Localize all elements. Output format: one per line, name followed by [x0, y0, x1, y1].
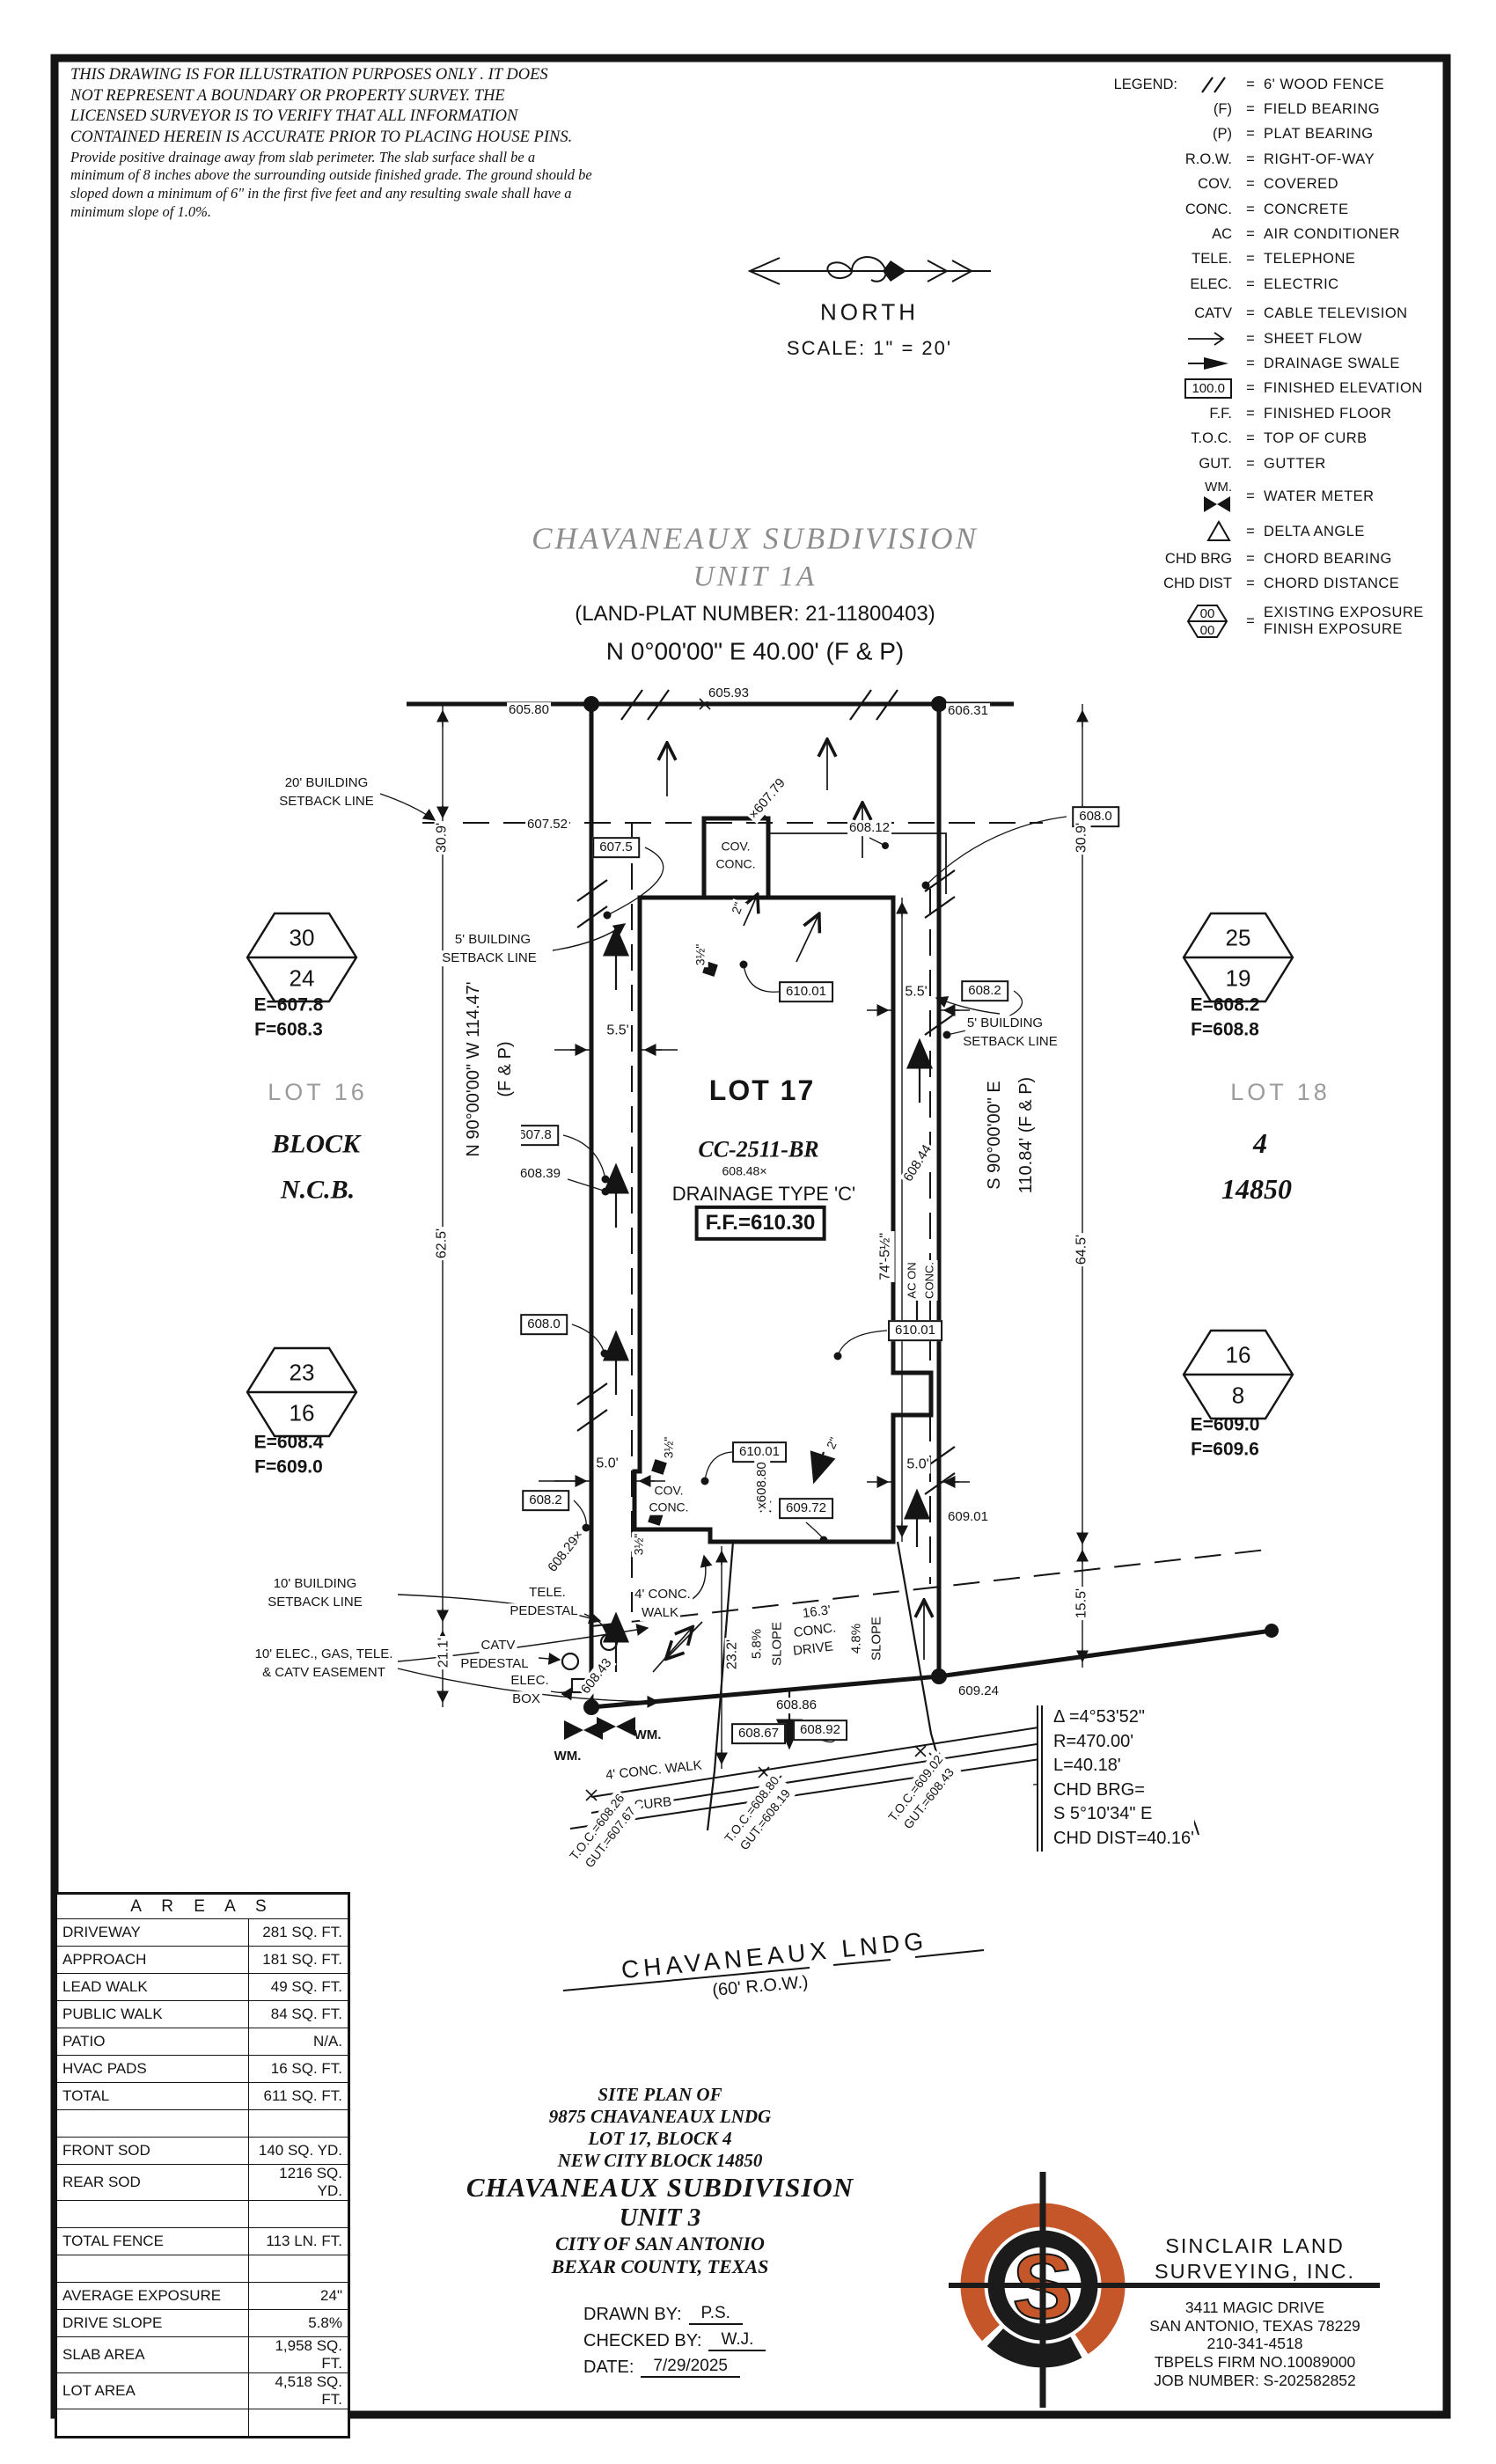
curve-delta: Δ =4°53'52" [1053, 1705, 1194, 1730]
legend-row: CONC.=CONCRETE [1098, 197, 1450, 222]
setback-callout: 20' BUILDING [283, 775, 370, 791]
legend-desc: 6' WOOD FENCE [1264, 77, 1450, 93]
curve-chord-distance: CHD DIST=40.16' [1053, 1827, 1194, 1852]
areas-table: A R E A S DRIVEWAY281 SQ. FT. APPROACH18… [55, 1892, 350, 2438]
exposure-elevation: F=608.8 [1189, 1020, 1261, 1042]
legend-row-delta: =DELTA ANGLE [1098, 517, 1450, 546]
dimension-label: 21.1' [436, 1636, 453, 1669]
disclaimer-line: LICENSED SURVEYOR IS TO VERIFY THAT ALL … [70, 106, 651, 128]
legend-row: T.O.C.=TOP OF CURB [1098, 426, 1450, 451]
subject-lot-label: LOT 17 [708, 1074, 817, 1108]
hex-existing-exposure: 25 [1224, 925, 1253, 952]
elec-box-label: BOX [510, 1691, 542, 1707]
curve-data-block: Δ =4°53'52" R=470.00' L=40.18' CHD BRG= … [1037, 1705, 1194, 1852]
walk-label: WALK [640, 1605, 680, 1621]
legend-row: R.O.W.=RIGHT-OF-WAY [1098, 147, 1450, 172]
legend-row: CHD BRG=CHORD BEARING [1098, 546, 1450, 571]
drainage-note-line: minimum slope of 1.0%. [70, 203, 651, 222]
firm-address-line: SAN ANTONIO, TEXAS 78229 [1126, 2317, 1383, 2336]
firm-phone: 210-341-4518 [1126, 2335, 1383, 2353]
survey-tick-marks [586, 699, 1093, 1809]
areas-row [56, 2110, 349, 2138]
setback-callout: SETBACK LINE [266, 1595, 364, 1610]
scale-label: SCALE: 1" = 20' [785, 337, 954, 360]
siteplan-unit: UNIT 3 [396, 2204, 924, 2233]
north-arrow-icon [750, 257, 991, 284]
legend-row: (P)=PLAT BEARING [1098, 122, 1450, 147]
exposure-hex-icon: 00 00 [1183, 598, 1232, 644]
finished-elevation-box: 607.5 [592, 837, 640, 858]
callout-leader-arrows [380, 794, 1000, 1702]
setback-callout: SETBACK LINE [277, 794, 376, 810]
drawn-by-row: DRAWN BY: P.S. [583, 2304, 743, 2325]
dimension-label: 3½" [662, 1435, 677, 1460]
checked-by-row: CHECKED BY: W.J. [583, 2330, 766, 2351]
drive-slope-label: 5.8%SLOPE [748, 1620, 788, 1668]
firm-address-line: 3411 MAGIC DRIVE [1126, 2299, 1383, 2317]
areas-row [56, 2409, 349, 2438]
legend-row: AC=AIR CONDITIONER [1098, 222, 1450, 246]
water-meter-icon [1202, 495, 1232, 514]
checked-by-value: W.J. [708, 2330, 766, 2351]
covered-concrete-label: COV. [653, 1484, 686, 1499]
drive-slope-label: 4.8%SLOPE [847, 1615, 887, 1662]
legend-desc: EXISTING EXPOSURE [1264, 605, 1450, 621]
disclaimer-line: THIS DRAWING IS FOR ILLUSTRATION PURPOSE… [70, 65, 651, 86]
areas-row [56, 2201, 349, 2228]
wood-fence-icon [1193, 75, 1232, 94]
covered-concrete-label: COV. [720, 840, 752, 854]
firm-name-line: SINCLAIR LAND [1126, 2233, 1383, 2259]
areas-row: AVERAGE EXPOSURE24" [56, 2283, 349, 2310]
catv-pedestal-icon [562, 1654, 578, 1669]
areas-row: FRONT SOD140 SQ. YD. [56, 2138, 349, 2165]
north-label: NORTH [818, 299, 920, 326]
dimension-label: 5.0' [905, 1457, 930, 1474]
elec-box-label: ELEC. [509, 1673, 550, 1689]
legend-row: (F)=FIELD BEARING [1098, 97, 1450, 121]
siteplan-county: BEXAR COUNTY, TEXAS [396, 2255, 924, 2278]
legend-row-water-meter: WM. =WATER METER [1098, 476, 1450, 517]
firm-name-line: SURVEYING, INC. [1126, 2259, 1383, 2284]
house-outline [634, 818, 931, 1542]
exposure-elevation: E=608.2 [1189, 995, 1262, 1017]
curve-chord-bearing: CHD BRG= [1053, 1778, 1194, 1803]
dimension-label: 5.0' [594, 1456, 620, 1473]
disclaimer-line: NOT REPRESENT A BOUNDARY OR PROPERTY SUR… [70, 86, 651, 107]
water-meter-label: WM. [553, 1749, 583, 1764]
areas-row: LEAD WALK49 SQ. FT. [56, 1974, 349, 2001]
finished-elevation-box: 610.01 [779, 981, 833, 1002]
drawn-by-value: P.S. [689, 2304, 743, 2325]
plan-model-number: CC-2511-BR [696, 1137, 820, 1164]
dimension-label: 5.5' [903, 985, 928, 1001]
finished-elevation-box: 610.01 [888, 1320, 942, 1341]
hex-existing-exposure: 23 [288, 1360, 317, 1387]
legend-row-exposure: 00 00 = EXISTING EXPOSUREFINISH EXPOSURE [1098, 597, 1450, 646]
dimension-label: 30.9' [1074, 821, 1091, 854]
dimension-label: 64.5' [1074, 1233, 1091, 1266]
block-label: BLOCK [270, 1128, 362, 1159]
disclaimer-line: CONTAINED HEREIN IS ACCURATE PRIOR TO PL… [70, 128, 651, 149]
covered-concrete-label: CONC. [714, 857, 757, 872]
sheet-flow-icon [1186, 330, 1232, 348]
spot-elevation: 605.80 [507, 702, 551, 718]
curve-chord-bearing-value: S 5°10'34" E [1053, 1802, 1194, 1827]
siteplan-line: SITE PLAN OF [396, 2084, 924, 2106]
siteplan-line: NEW CITY BLOCK 14850 [396, 2150, 924, 2172]
west-boundary-bearing: N 90°00'00" W 114.47' (F & P) [458, 979, 521, 1158]
exposure-elevation: F=609.0 [253, 1457, 325, 1479]
east-boundary-bearing: S 90°00'00" E 110.84' (F & P) [979, 1075, 1042, 1195]
setback-callout: 5' BUILDING [965, 1016, 1045, 1031]
areas-header: A R E A S [56, 1894, 349, 1919]
legend-row: ELEC.=ELECTRIC [1098, 272, 1450, 297]
ncb-label: N.C.B. [279, 1174, 356, 1205]
legend-row: GUT.=GUTTER [1098, 451, 1450, 476]
finished-floor-box: F.F.=610.30 [695, 1206, 826, 1241]
spot-elevation: 608.48× [721, 1164, 769, 1179]
easement-callout: 10' ELEC., GAS, TELE. [253, 1646, 395, 1662]
areas-row: APPROACH181 SQ. FT. [56, 1947, 349, 1974]
hex-finish-exposure: 8 [1230, 1382, 1246, 1410]
hex-finish-exposure: 19 [1224, 965, 1253, 993]
covered-concrete-label: CONC. [647, 1500, 690, 1515]
dimension-label: 74'-5½" [878, 1231, 895, 1282]
areas-row: TOTAL611 SQ. FT. [56, 2083, 349, 2110]
dimension-label: 62.5' [435, 1227, 451, 1260]
finished-elevation-box: 608.67 [731, 1723, 786, 1744]
legend-row: F.F.=FINISHED FLOOR [1098, 401, 1450, 426]
legend-title: LEGEND: [1114, 77, 1177, 93]
ncb-number: 14850 [1220, 1173, 1294, 1206]
areas-row: PUBLIC WALK84 SQ. FT. [56, 2001, 349, 2028]
finished-elevation-box: 608.2 [522, 1490, 569, 1511]
date-row: DATE: 7/29/2025 [583, 2357, 740, 2378]
firm-name: SINCLAIR LAND SURVEYING, INC. [1126, 2233, 1383, 2285]
dimension-label: 3½" [693, 942, 708, 967]
areas-row: DRIVE SLOPE5.8% [56, 2310, 349, 2337]
exposure-elevation: E=607.8 [253, 995, 326, 1017]
tele-pedestal-label: PEDESTAL [508, 1603, 579, 1619]
dimension-label: 3½" [632, 1532, 647, 1557]
dimension-label: 5.5' [605, 1023, 630, 1040]
dimension-label: 30.9' [435, 821, 451, 854]
easement-callout: & CATV EASEMENT [260, 1665, 387, 1681]
hex-existing-exposure: 30 [288, 925, 317, 952]
spot-elevation: 607.52 [525, 817, 569, 832]
drawn-by-label: DRAWN BY: [583, 2305, 682, 2325]
disclaimer-note: THIS DRAWING IS FOR ILLUSTRATION PURPOSE… [70, 65, 651, 222]
svg-text:00: 00 [1200, 606, 1215, 621]
date-value: 7/29/2025 [641, 2357, 740, 2378]
dimension-label: 23.2' [725, 1638, 742, 1671]
hex-finish-exposure: 16 [288, 1400, 317, 1427]
curve-length: L=40.18' [1053, 1754, 1194, 1778]
legend-row-sheet-flow: =SHEET FLOW [1098, 326, 1450, 351]
finished-elevation-box: 610.01 [732, 1441, 787, 1463]
bearing-line: 110.84' (F & P) [1010, 1077, 1042, 1193]
delta-angle-icon [1206, 519, 1232, 544]
ac-on-conc-label: AC ONCONC. [904, 1260, 938, 1301]
hex-existing-exposure: 16 [1224, 1342, 1253, 1369]
spot-elevation: 608.86 [774, 1698, 818, 1713]
legend-row: CHD DIST=CHORD DISTANCE [1098, 572, 1450, 597]
spot-elevation: 605.93 [707, 686, 751, 701]
drainage-note-line: sloped down a minimum of 6" in the first… [70, 185, 651, 203]
firm-address: 3411 MAGIC DRIVE SAN ANTONIO, TEXAS 7822… [1126, 2299, 1383, 2389]
curve-radius: R=470.00' [1053, 1730, 1194, 1755]
areas-row: LOT AREA4,518 SQ. FT. [56, 2373, 349, 2409]
plat-number: (LAND-PLAT NUMBER: 21-11800403) [573, 602, 937, 627]
water-meter-label: WM. [633, 1727, 664, 1743]
legend-row-fence: LEGEND: =6' WOOD FENCE [1098, 72, 1450, 97]
spot-elevation: 606.31 [946, 703, 990, 719]
legend-row-finished-elev: 100.0 =FINISHED ELEVATION [1098, 377, 1450, 401]
hex-finish-exposure: 24 [288, 965, 317, 993]
siteplan-city: CITY OF SAN ANTONIO [396, 2233, 924, 2255]
finished-elevation-box: 608.0 [520, 1314, 568, 1335]
siteplan-line: 9875 CHAVANEAUX LNDG [396, 2106, 924, 2128]
setback-callout: SETBACK LINE [440, 950, 539, 966]
north-boundary-bearing: N 0°00'00" E 40.00' (F & P) [605, 636, 906, 665]
bearing-line: S 90°00'00" E [979, 1077, 1010, 1193]
job-number: JOB NUMBER: S-202582852 [1126, 2372, 1383, 2390]
catv-pedestal-label: PEDESTAL [458, 1656, 530, 1672]
dimension-label: 15.5' [1074, 1587, 1091, 1620]
block-number: 4 [1251, 1127, 1269, 1161]
finished-elevation-box: 609.72 [779, 1498, 833, 1519]
checked-by-label: CHECKED BY: [583, 2331, 701, 2351]
exposure-elevation: F=608.3 [253, 1020, 325, 1042]
spot-elevation: 609.24 [957, 1683, 1001, 1699]
hatch-blocks [648, 961, 718, 1526]
finished-elevation-box: 608.92 [793, 1720, 847, 1741]
tele-pedestal-label: TELE. [527, 1585, 568, 1601]
spot-elevation: x608.80 [754, 1460, 770, 1510]
spot-elevation: 608.12 [847, 820, 891, 836]
legend-row: CATV=CABLE TELEVISION [1098, 302, 1450, 326]
garage-slab-line [768, 833, 946, 894]
areas-row: TOTAL FENCE113 LN. FT. [56, 2228, 349, 2255]
drainage-note-line: Provide positive drainage away from slab… [70, 149, 651, 167]
siteplan-subdivision: CHAVANEAUX SUBDIVISION [396, 2172, 924, 2204]
drainage-note-line: minimum of 8 inches above the surroundin… [70, 166, 651, 185]
legend-desc: FINISH EXPOSURE [1264, 621, 1450, 638]
bearing-line: N 90°00'00" W 114.47' [458, 981, 489, 1156]
areas-row: SLAB AREA1,958 SQ. FT. [56, 2337, 349, 2373]
date-label: DATE: [583, 2358, 634, 2378]
subdivision-unit: UNIT 1A [692, 561, 819, 595]
adjacent-lot-label: LOT 16 [266, 1079, 370, 1107]
legend-row-swale: =DRAINAGE SWALE [1098, 351, 1450, 376]
exposure-elevation: E=609.0 [1189, 1415, 1262, 1437]
water-meter-icons [564, 1717, 635, 1740]
subdivision-title: CHAVANEAUX SUBDIVISION [530, 520, 980, 556]
setback-callout: SETBACK LINE [961, 1034, 1060, 1050]
drainage-swale-icon [1186, 355, 1232, 372]
setback-callout: 5' BUILDING [453, 932, 532, 948]
tele-pedestal-icon [601, 1634, 617, 1650]
finished-elevation-box-icon: 100.0 [1184, 378, 1232, 399]
exposure-elevation: E=608.4 [253, 1433, 326, 1455]
areas-row: PATION/A. [56, 2028, 349, 2056]
adjacent-lot-label: LOT 18 [1228, 1079, 1332, 1107]
property-boundary [407, 704, 1272, 1707]
exposure-elevation: F=609.6 [1189, 1440, 1261, 1462]
legend: LEGEND: =6' WOOD FENCE (F)=FIELD BEARING… [1098, 72, 1450, 646]
areas-row: HVAC PADS16 SQ. FT. [56, 2056, 349, 2083]
svg-text:00: 00 [1200, 623, 1215, 638]
catv-pedestal-label: CATV [480, 1638, 517, 1654]
site-plan-title-block: SITE PLAN OF 9875 CHAVANEAUX LNDG LOT 17… [396, 2084, 924, 2278]
walk-label: 4' CONC. [633, 1587, 693, 1602]
areas-row [56, 2255, 349, 2283]
areas-row: DRIVEWAY281 SQ. FT. [56, 1919, 349, 1947]
areas-row: REAR SOD1216 SQ. YD. [56, 2165, 349, 2201]
wm-label: WM. [1205, 480, 1232, 495]
legend-row: TELE.=TELEPHONE [1098, 247, 1450, 272]
finished-elevation-box: 608.2 [961, 980, 1008, 1001]
setback-callout: 10' BUILDING [272, 1576, 359, 1592]
spot-elevation: 608.39 [518, 1166, 562, 1182]
drainage-type-label: DRAINAGE TYPE 'C' [671, 1183, 857, 1206]
siteplan-line: LOT 17, BLOCK 4 [396, 2128, 924, 2150]
spot-elevation: 609.01 [946, 1509, 990, 1525]
firm-registration: TBPELS FIRM NO.10089000 [1126, 2353, 1383, 2372]
site-plan-sheet: S THIS DRAWING IS FOR ILLUSTRATION PURPO… [0, 0, 1496, 2464]
legend-row: COV.=COVERED [1098, 172, 1450, 197]
bearing-line: (F & P) [489, 981, 521, 1156]
